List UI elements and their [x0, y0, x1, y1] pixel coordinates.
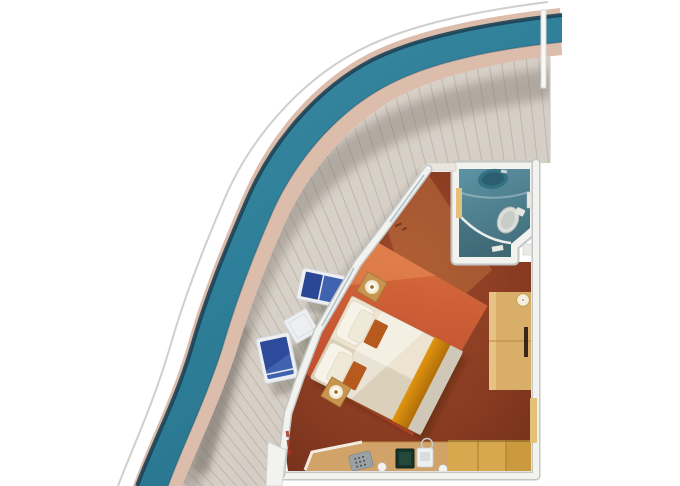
tv [396, 449, 414, 468]
wardrobe [448, 440, 533, 472]
balcony-divider [541, 10, 546, 88]
sofa [489, 292, 535, 390]
bath-shelf [523, 244, 532, 255]
bathroom-door [456, 188, 462, 218]
floorplan-stage [0, 0, 680, 486]
entry-door [530, 398, 537, 443]
towel-bar [527, 192, 532, 208]
sofa-lamp [517, 294, 530, 307]
bathroom [456, 166, 533, 260]
neighbor-wall [266, 442, 286, 486]
sofa-armrest-slot [524, 327, 528, 357]
floorplan-canvas [0, 0, 680, 486]
stool-1 [378, 463, 387, 472]
